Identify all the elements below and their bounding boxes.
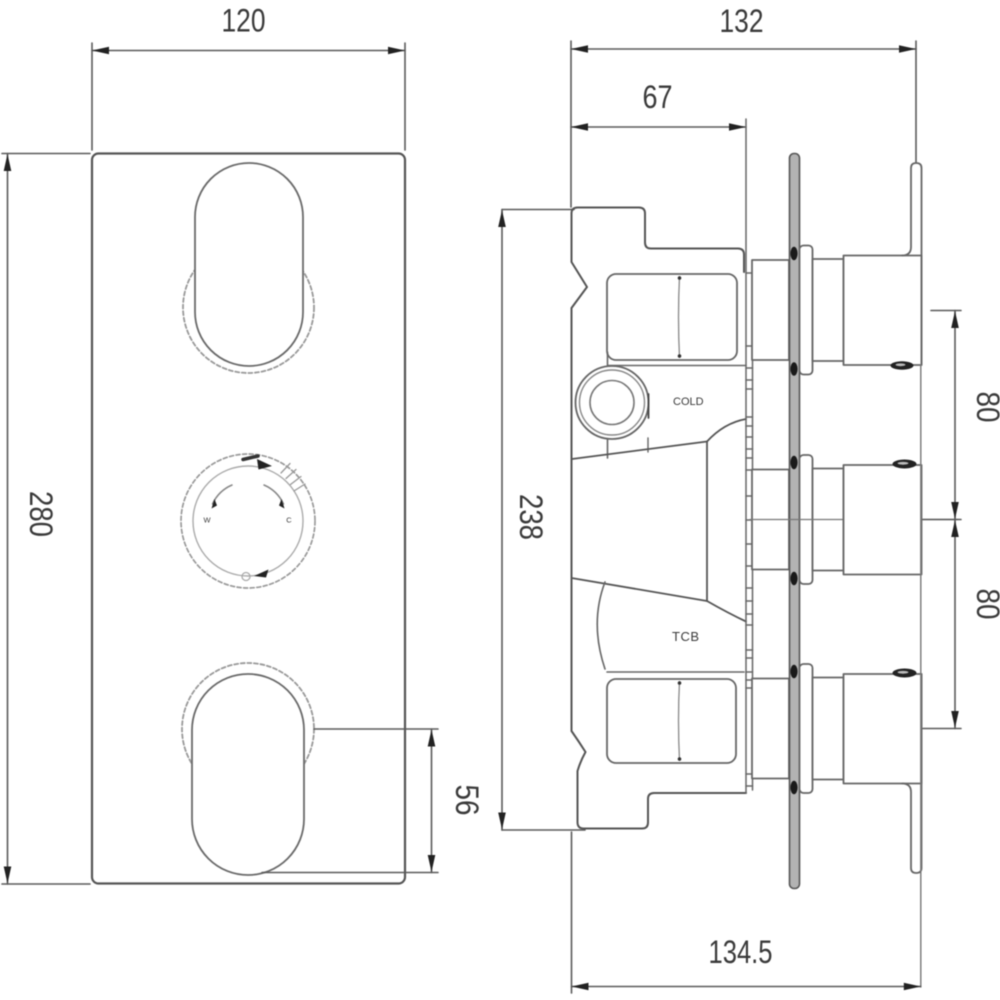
svg-text:C: C	[286, 516, 292, 525]
svg-text:238: 238	[513, 494, 549, 540]
svg-text:132: 132	[720, 3, 764, 39]
svg-text:134.5: 134.5	[709, 934, 773, 970]
svg-text:80: 80	[970, 392, 1000, 423]
svg-text:W: W	[203, 516, 211, 525]
svg-text:120: 120	[222, 3, 266, 39]
svg-text:80: 80	[970, 589, 1000, 620]
svg-text:280: 280	[23, 491, 59, 537]
svg-text:67: 67	[643, 79, 673, 115]
svg-text:56: 56	[449, 785, 485, 816]
svg-text:COLD: COLD	[673, 396, 704, 408]
svg-text:TCB: TCB	[672, 629, 700, 644]
